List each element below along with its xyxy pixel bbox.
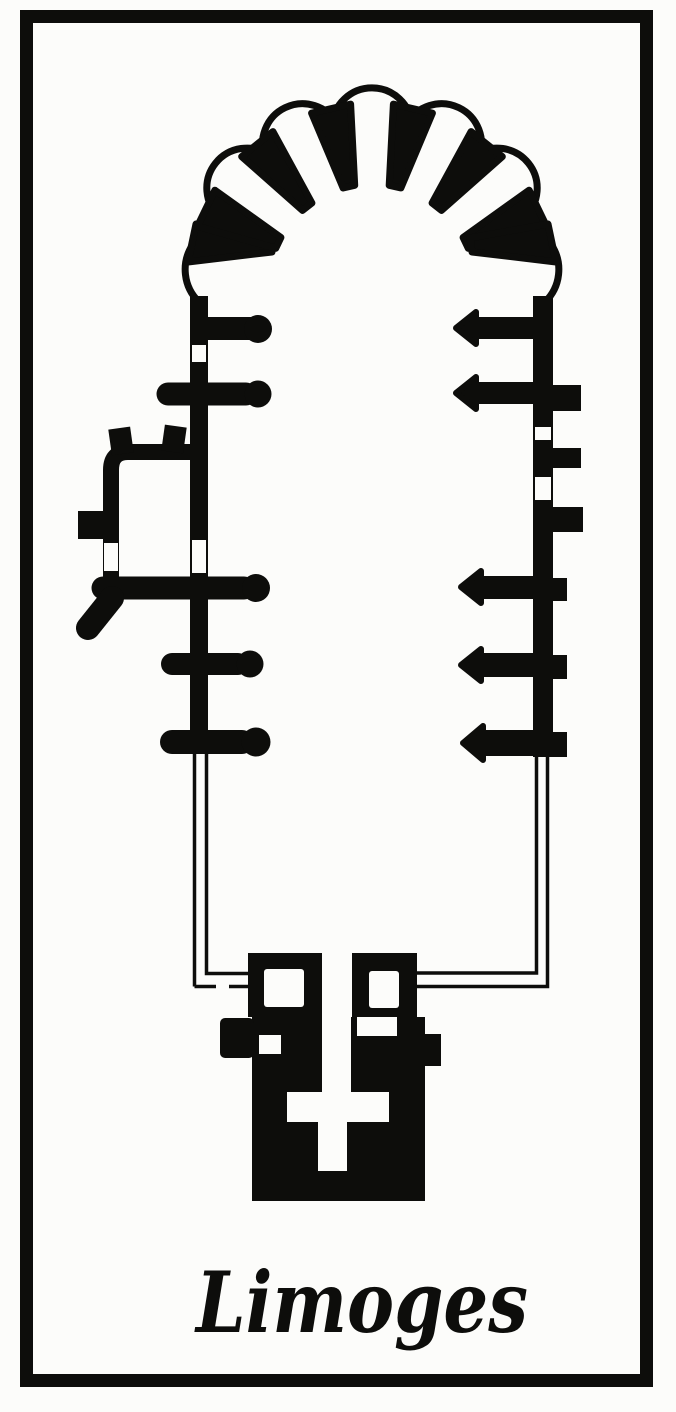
door-openings xyxy=(192,345,551,573)
buttress-outer-stub xyxy=(553,655,567,679)
buttress-outer-stub xyxy=(553,448,581,468)
apse-chapel-wedges xyxy=(188,104,556,262)
tower-passage-slot xyxy=(357,1017,397,1036)
buttress-tick-bulb xyxy=(244,315,272,343)
choir-walls xyxy=(103,296,583,760)
apse-chapel-outline xyxy=(185,88,559,302)
buttress-tick xyxy=(474,653,553,677)
buttress-tick-arrow xyxy=(463,726,483,760)
buttress-outer-stub xyxy=(553,732,567,757)
tower-central-passage xyxy=(322,1017,351,1095)
buttress-tick xyxy=(468,382,553,404)
buttress-tick-arrow xyxy=(456,377,476,409)
sacristy-buttress-top xyxy=(108,427,133,456)
sacristy-buttress-top xyxy=(161,425,186,454)
chapel-wedge-6 xyxy=(432,132,502,211)
chapel-wedge-3 xyxy=(242,132,312,211)
sacristy-corner-stub xyxy=(88,598,112,628)
buttress-tick xyxy=(468,317,553,339)
west-tower-block xyxy=(220,953,441,1201)
buttress-tick-bulb xyxy=(242,728,271,757)
door-opening xyxy=(535,477,551,500)
door-opening xyxy=(535,427,551,440)
tower-cross-arm-vertical xyxy=(318,1122,347,1171)
door-opening xyxy=(104,543,118,571)
buttress-tick-bulb xyxy=(245,381,272,408)
tower-pier-opening xyxy=(369,971,399,1008)
buttress-tick-arrow xyxy=(461,649,481,681)
choir-wall-left xyxy=(190,296,208,753)
door-opening xyxy=(192,540,206,573)
tower-pier-opening xyxy=(264,969,304,1007)
chapel-wedge-5 xyxy=(389,104,432,188)
nave-wall-right-outer xyxy=(417,757,548,987)
buttress-tick xyxy=(474,576,553,599)
choir-wall-right xyxy=(533,296,553,757)
caption-label: Limoges xyxy=(194,1253,528,1352)
nave-wall-left-outer xyxy=(195,753,249,987)
limoges-plan-plate: Limoges xyxy=(0,0,676,1412)
unbuilt-nave-outline xyxy=(195,753,548,987)
buttress-outer-stub xyxy=(553,507,583,532)
tower-cross-arm-horizontal xyxy=(287,1092,389,1122)
chevet-apse xyxy=(185,88,559,302)
buttress-tick xyxy=(196,317,252,340)
buttress-ticks-left xyxy=(103,315,272,757)
buttress-ticks-right xyxy=(456,312,583,760)
tower-porch-west xyxy=(220,1018,254,1058)
chapel-wedge-4 xyxy=(312,104,355,188)
buttress-tick xyxy=(476,730,553,756)
nave-wall-right-inner xyxy=(417,757,537,973)
tower-porch-east xyxy=(425,1034,441,1066)
tower-niche xyxy=(259,1035,281,1054)
buttress-outer-stub xyxy=(553,385,581,411)
buttress-tick-arrow xyxy=(456,312,476,344)
buttress-outer-stub xyxy=(553,578,567,601)
nave-wall-left-inner xyxy=(207,753,249,974)
buttress-tick-arrow xyxy=(461,571,481,603)
buttress-tick-bulb xyxy=(237,651,264,678)
sacristy-buttress-left xyxy=(78,511,108,539)
door-opening xyxy=(192,345,206,362)
buttress-tick-bulb xyxy=(242,574,270,602)
cathedral-ground-plan-figure: Limoges xyxy=(0,0,676,1412)
